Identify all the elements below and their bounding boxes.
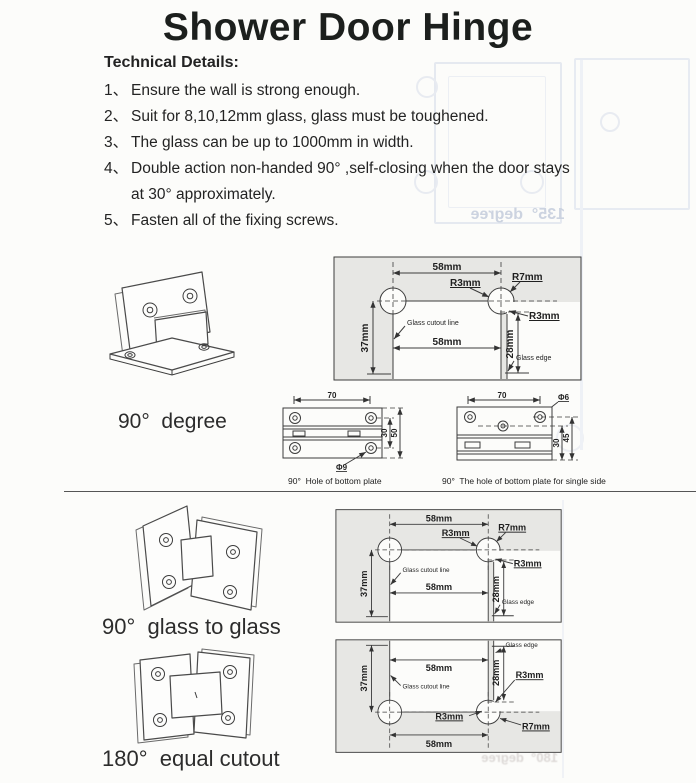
dim-label: 58mm — [426, 663, 452, 673]
dim-label: 58mm — [426, 582, 452, 592]
dim-label: 30 — [380, 428, 389, 437]
label-90-glass-to-glass: 90° glass to glass — [102, 614, 281, 640]
dim-label: R7mm — [522, 721, 550, 731]
item-text: The glass can be up to 1000mm in width. — [131, 130, 414, 156]
page-title: Shower Door Hinge — [0, 6, 696, 50]
dim-label: 37mm — [359, 665, 369, 691]
label-90-degree: 90° degree — [118, 410, 227, 434]
label-180-equal-cutout: 180° equal cutout — [102, 746, 280, 772]
item-number: 5、 — [104, 208, 131, 234]
dim-label: 28mm — [505, 329, 516, 358]
callout-label: Glass edge — [516, 355, 552, 362]
caption-hole-of-bottom-plate: 90° Hole of bottom plate — [288, 476, 382, 486]
dim-label: 70 — [498, 391, 507, 400]
hinge-drawing-90-glass-to-glass — [133, 496, 273, 618]
section-divider — [64, 491, 696, 492]
hinge-drawing-90-degree — [100, 268, 240, 383]
dim-label: 37mm — [359, 571, 369, 597]
dim-label: 37mm — [360, 323, 371, 352]
ghost-hinge-circle — [600, 112, 620, 132]
dim-label: 58mm — [433, 337, 462, 348]
item-text: Fasten all of the fixing screws. — [131, 208, 339, 234]
dim-label: 28mm — [491, 660, 501, 686]
item-number: 4、 — [104, 156, 131, 182]
bottom-plate-diagram: 70 30 50 Φ9 — [278, 393, 406, 479]
dim-label: Φ6 — [558, 393, 570, 402]
dim-label: R7mm — [512, 272, 543, 283]
list-item: 1、 Ensure the wall is strong enough. — [104, 78, 590, 104]
bottom-plate-single-side-diagram: 70 Φ6 30 45 — [448, 393, 585, 479]
list-item: 5、 Fasten all of the fixing screws. — [104, 208, 590, 234]
dimension-70: 70 — [294, 391, 370, 404]
callout-label: Glass edge — [506, 642, 539, 649]
dim-label: 58mm — [426, 739, 452, 749]
item-number: 2、 — [104, 104, 131, 130]
scanned-spec-page: 135° degree 180° degree Shower Door Hing… — [0, 0, 696, 783]
item-text: Double action non-handed 90° ,self-closi… — [131, 156, 570, 182]
dim-label: R3mm — [516, 670, 544, 680]
tech-heading: Technical Details: — [104, 54, 590, 72]
list-item: 2、 Suit for 8,10,12mm glass, glass must … — [104, 104, 590, 130]
dim-label: R3mm — [442, 528, 470, 538]
dim-label: 70 — [328, 391, 337, 400]
center-knuckle — [181, 536, 213, 580]
ghost-door-outline — [574, 58, 690, 210]
callout-label: Glass edge — [502, 599, 535, 606]
hinge-drawing-180-equal-cutout — [126, 640, 266, 752]
technical-details: Technical Details: 1、 Ensure the wall is… — [104, 54, 590, 234]
dim-label: 58mm — [433, 262, 462, 273]
caption-hole-single-side: 90° The hole of bottom plate for single … — [442, 476, 606, 486]
dim-label: 50 — [390, 428, 399, 437]
item-text: Ensure the wall is strong enough. — [131, 78, 360, 104]
dim-label: 58mm — [426, 514, 452, 524]
callout-label: Glass cutout line — [402, 683, 450, 690]
cutout-diagram-180: 37mm Glass edge 28mm 58mm Glass cutout l… — [335, 638, 563, 756]
dim-label: R3mm — [529, 311, 560, 322]
dim-label: R3mm — [514, 558, 542, 568]
list-item: 4、 Double action non-handed 90° ,self-cl… — [104, 156, 590, 182]
plate-body — [283, 408, 382, 458]
item-number: 1、 — [104, 78, 131, 104]
cutout-diagram-glass-to-glass: 58mm R3mm R7mm Glass cutout line 37mm 58… — [335, 506, 563, 624]
item-number: 3、 — [104, 130, 131, 156]
dim-label: 30 — [552, 438, 561, 447]
dim-label: 28mm — [491, 576, 501, 602]
dimension-45: 45 — [562, 417, 572, 460]
item-text-wrapped: at 30° approximately. — [131, 182, 590, 208]
dim-label: R3mm — [450, 278, 481, 289]
list-item: 3、 The glass can be up to 1000mm in widt… — [104, 130, 590, 156]
dim-label: 45 — [562, 433, 571, 442]
dim-label: R7mm — [498, 523, 526, 533]
callout-label: Glass cutout line — [402, 567, 450, 574]
dimension-70: 70 — [468, 391, 540, 404]
callout-label: Glass cutout line — [407, 320, 459, 327]
cutout-diagram-90-degree: 58mm R3mm R7mm Glass cutout line 37mm 58… — [333, 253, 583, 382]
item-text: Suit for 8,10,12mm glass, glass must be … — [131, 104, 489, 130]
dim-label: R3mm — [435, 711, 463, 721]
